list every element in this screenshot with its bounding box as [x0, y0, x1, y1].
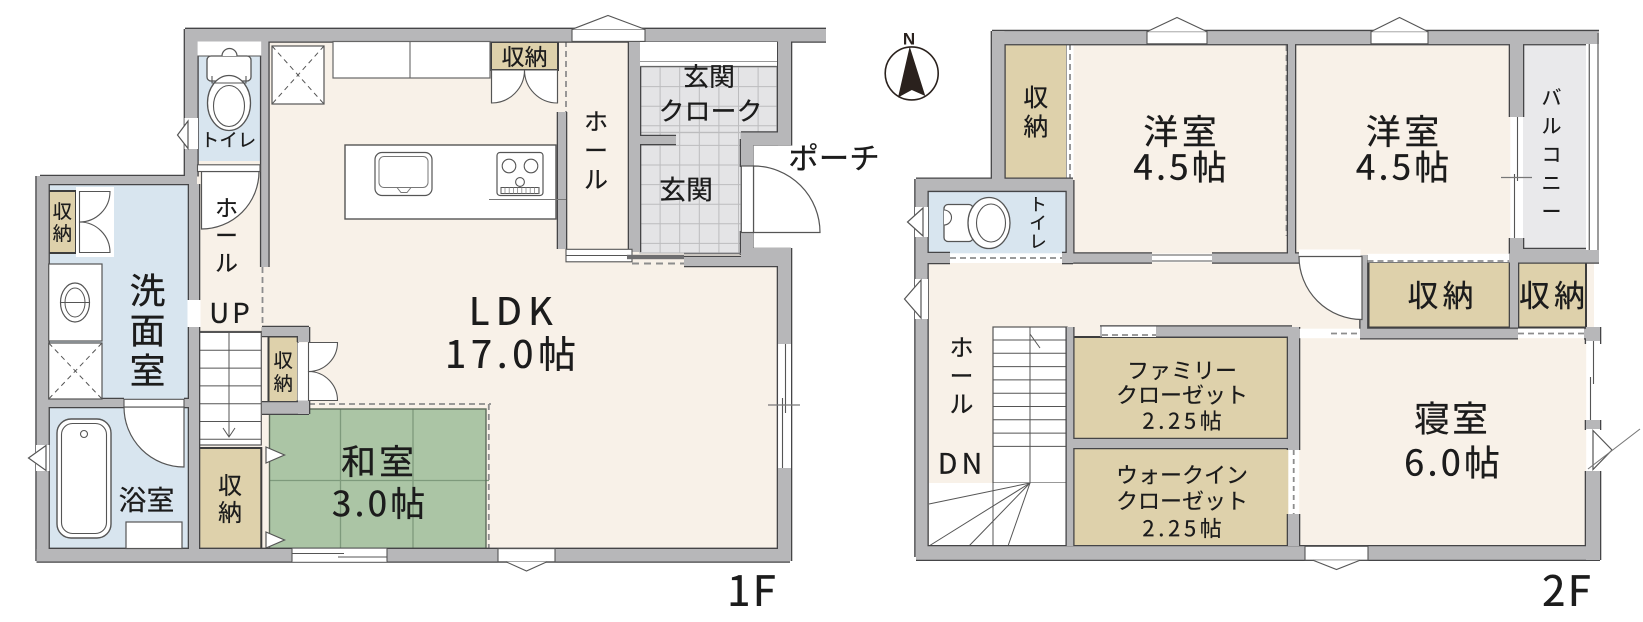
svg-text:N: N: [903, 30, 915, 49]
